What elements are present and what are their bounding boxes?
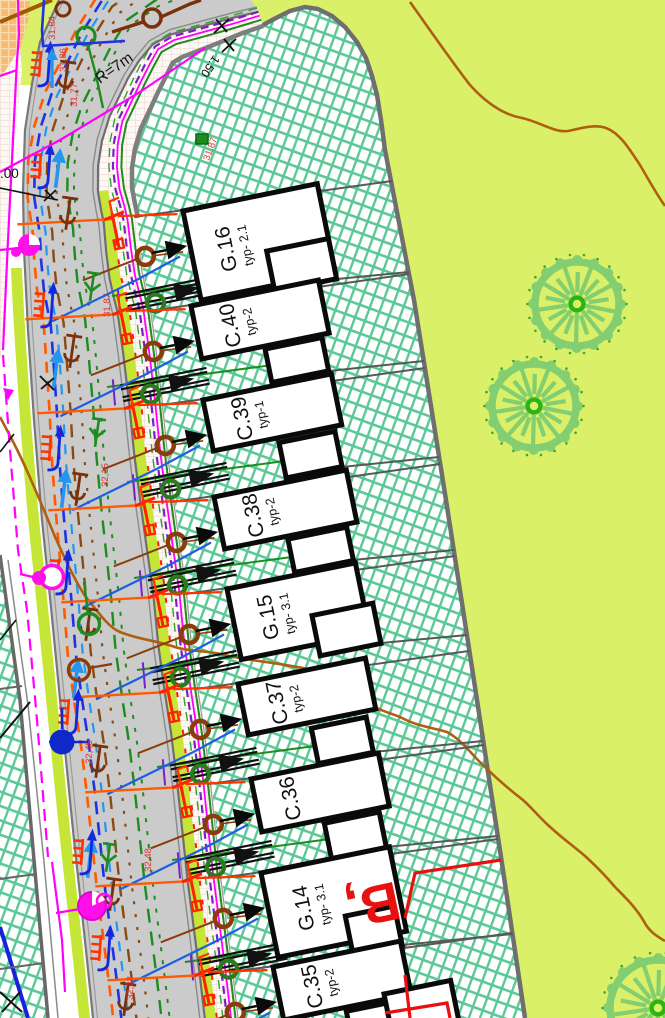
- svg-text:.00: .00: [0, 166, 19, 181]
- svg-text:31,77: 31,77: [69, 83, 80, 107]
- svg-text:32,45: 32,45: [84, 740, 95, 764]
- svg-text:32,48: 32,48: [143, 848, 154, 872]
- svg-text:31,87: 31,87: [102, 293, 113, 317]
- svg-text:31,84: 31,84: [47, 16, 58, 40]
- svg-text:32,15: 32,15: [100, 463, 111, 487]
- svg-text:32,38: 32,38: [125, 976, 136, 1000]
- svg-text:31,86: 31,86: [58, 48, 69, 72]
